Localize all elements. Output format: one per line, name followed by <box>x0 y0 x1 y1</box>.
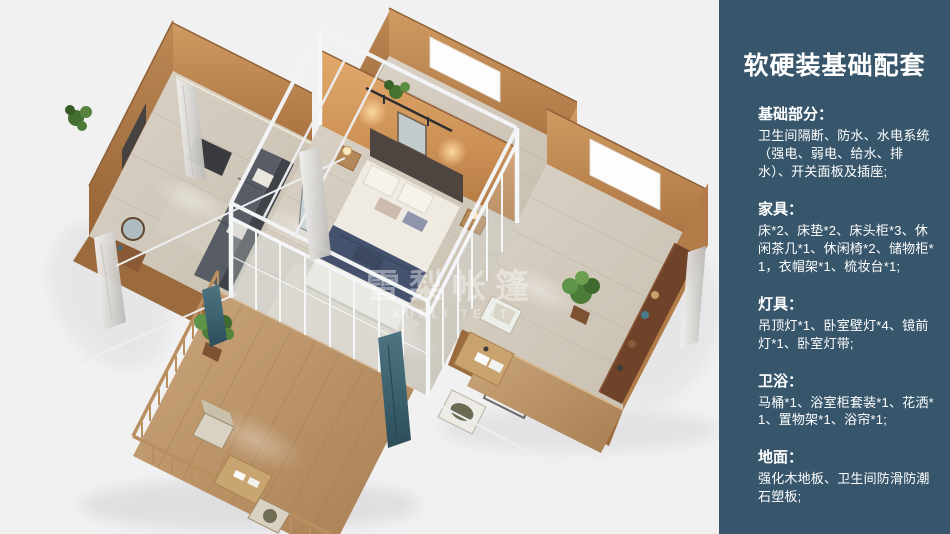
section-furniture: 家具： 床*2、床垫*2、床头柜*3、休闲茶几*1、休闲椅*2、储物柜*1，衣帽… <box>758 201 936 276</box>
watermark-text-en: XUELI TENT <box>392 307 512 321</box>
round-mirror <box>122 218 144 240</box>
section-bathroom-body: 马桶*1、浴室柜套装*1、花洒*1、置物架*1、浴帘*1; <box>758 394 936 430</box>
package-sidebar: 软硬装基础配套 基础部分： 卫生间隔断、防水、水电系统（强电、弱电、给水、排水）… <box>719 0 950 534</box>
section-bathroom: 卫浴： 马桶*1、浴室柜套装*1、花洒*1、置物架*1、浴帘*1; <box>758 373 936 430</box>
section-basics-body: 卫生间隔断、防水、水电系统（强电、弱电、给水、排水）、开关面板及插座; <box>758 127 936 181</box>
floorplan-render: 雪梨帐篷 XUELI TENT <box>0 0 719 534</box>
section-flooring: 地面： 强化木地板、卫生间防滑防潮石塑板; <box>758 449 936 506</box>
section-lighting: 灯具： 吊顶灯*1、卧室壁灯*4、镜前灯*1、卧室灯带; <box>758 296 936 353</box>
section-flooring-body: 强化木地板、卫生间防滑防潮石塑板; <box>758 470 936 506</box>
lamp <box>343 147 352 156</box>
section-bathroom-heading: 卫浴： <box>758 373 936 391</box>
sidebar-title: 软硬装基础配套 <box>719 46 950 82</box>
section-list: 基础部分： 卫生间隔断、防水、水电系统（强电、弱电、给水、排水）、开关面板及插座… <box>758 106 936 506</box>
section-lighting-heading: 灯具： <box>758 296 936 314</box>
section-basics: 基础部分： 卫生间隔断、防水、水电系统（强电、弱电、给水、排水）、开关面板及插座… <box>758 106 936 181</box>
section-flooring-heading: 地面： <box>758 449 936 467</box>
watermark-text-cn: 雪梨帐篷 <box>366 268 538 306</box>
section-furniture-body: 床*2、床垫*2、床头柜*3、休闲茶几*1、休闲椅*2、储物柜*1，衣帽架*1、… <box>758 222 936 276</box>
section-furniture-heading: 家具： <box>758 201 936 219</box>
section-lighting-body: 吊顶灯*1、卧室壁灯*4、镜前灯*1、卧室灯带; <box>758 317 936 353</box>
slide: 雪梨帐篷 XUELI TENT 软硬装基础配套 基础部分： 卫生间隔断、防水、水… <box>0 0 950 534</box>
section-basics-heading: 基础部分： <box>758 106 936 124</box>
